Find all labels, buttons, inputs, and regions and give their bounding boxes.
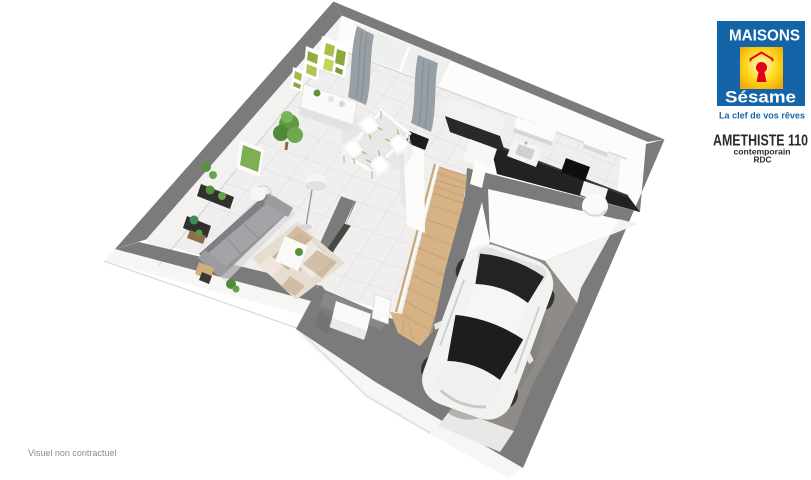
svg-text:RDC: RDC <box>754 155 772 165</box>
svg-text:La clef de vos rêves: La clef de vos rêves <box>719 111 805 122</box>
svg-text:Visuel non contractuel: Visuel non contractuel <box>28 448 116 458</box>
svg-text:Sésame: Sésame <box>725 88 796 107</box>
svg-text:MAISONS: MAISONS <box>729 28 800 45</box>
